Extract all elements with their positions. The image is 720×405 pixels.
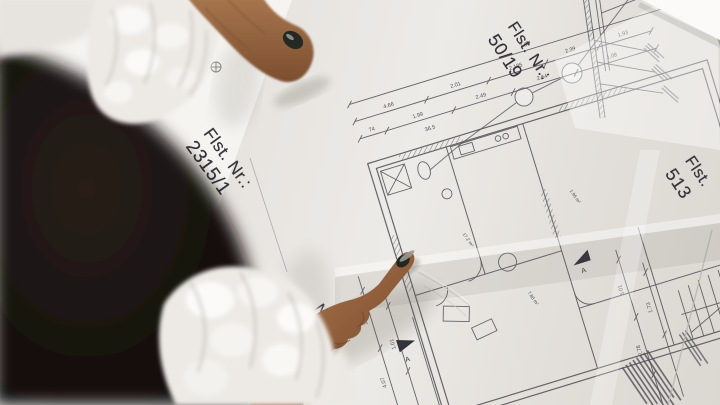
figure-overlay <box>0 0 720 405</box>
sleeve-ruffle-top <box>87 0 219 124</box>
photo-scene: 7.06 4.66 2.01 2.185 2.39 1.93 74 1.99 2… <box>0 0 720 405</box>
